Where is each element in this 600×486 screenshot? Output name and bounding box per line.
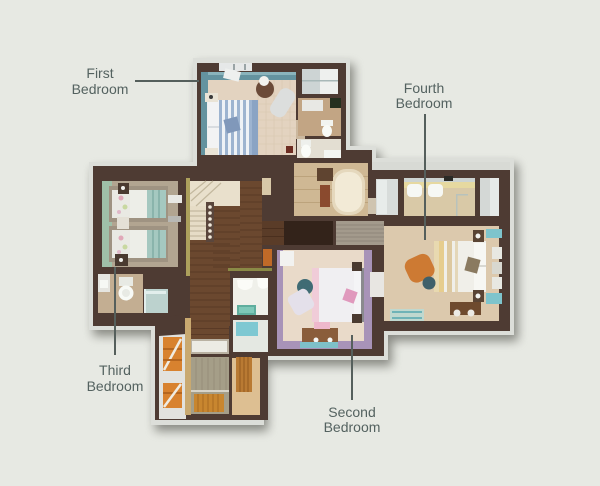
svg-text:Fourth: Fourth [404, 80, 444, 96]
svg-text:First: First [86, 65, 113, 81]
svg-text:Second: Second [328, 404, 375, 420]
svg-text:Third: Third [99, 362, 131, 378]
svg-text:Bedroom: Bedroom [72, 81, 129, 97]
svg-text:Bedroom: Bedroom [324, 419, 381, 435]
svg-text:Bedroom: Bedroom [87, 378, 144, 394]
svg-text:Bedroom: Bedroom [396, 95, 453, 111]
